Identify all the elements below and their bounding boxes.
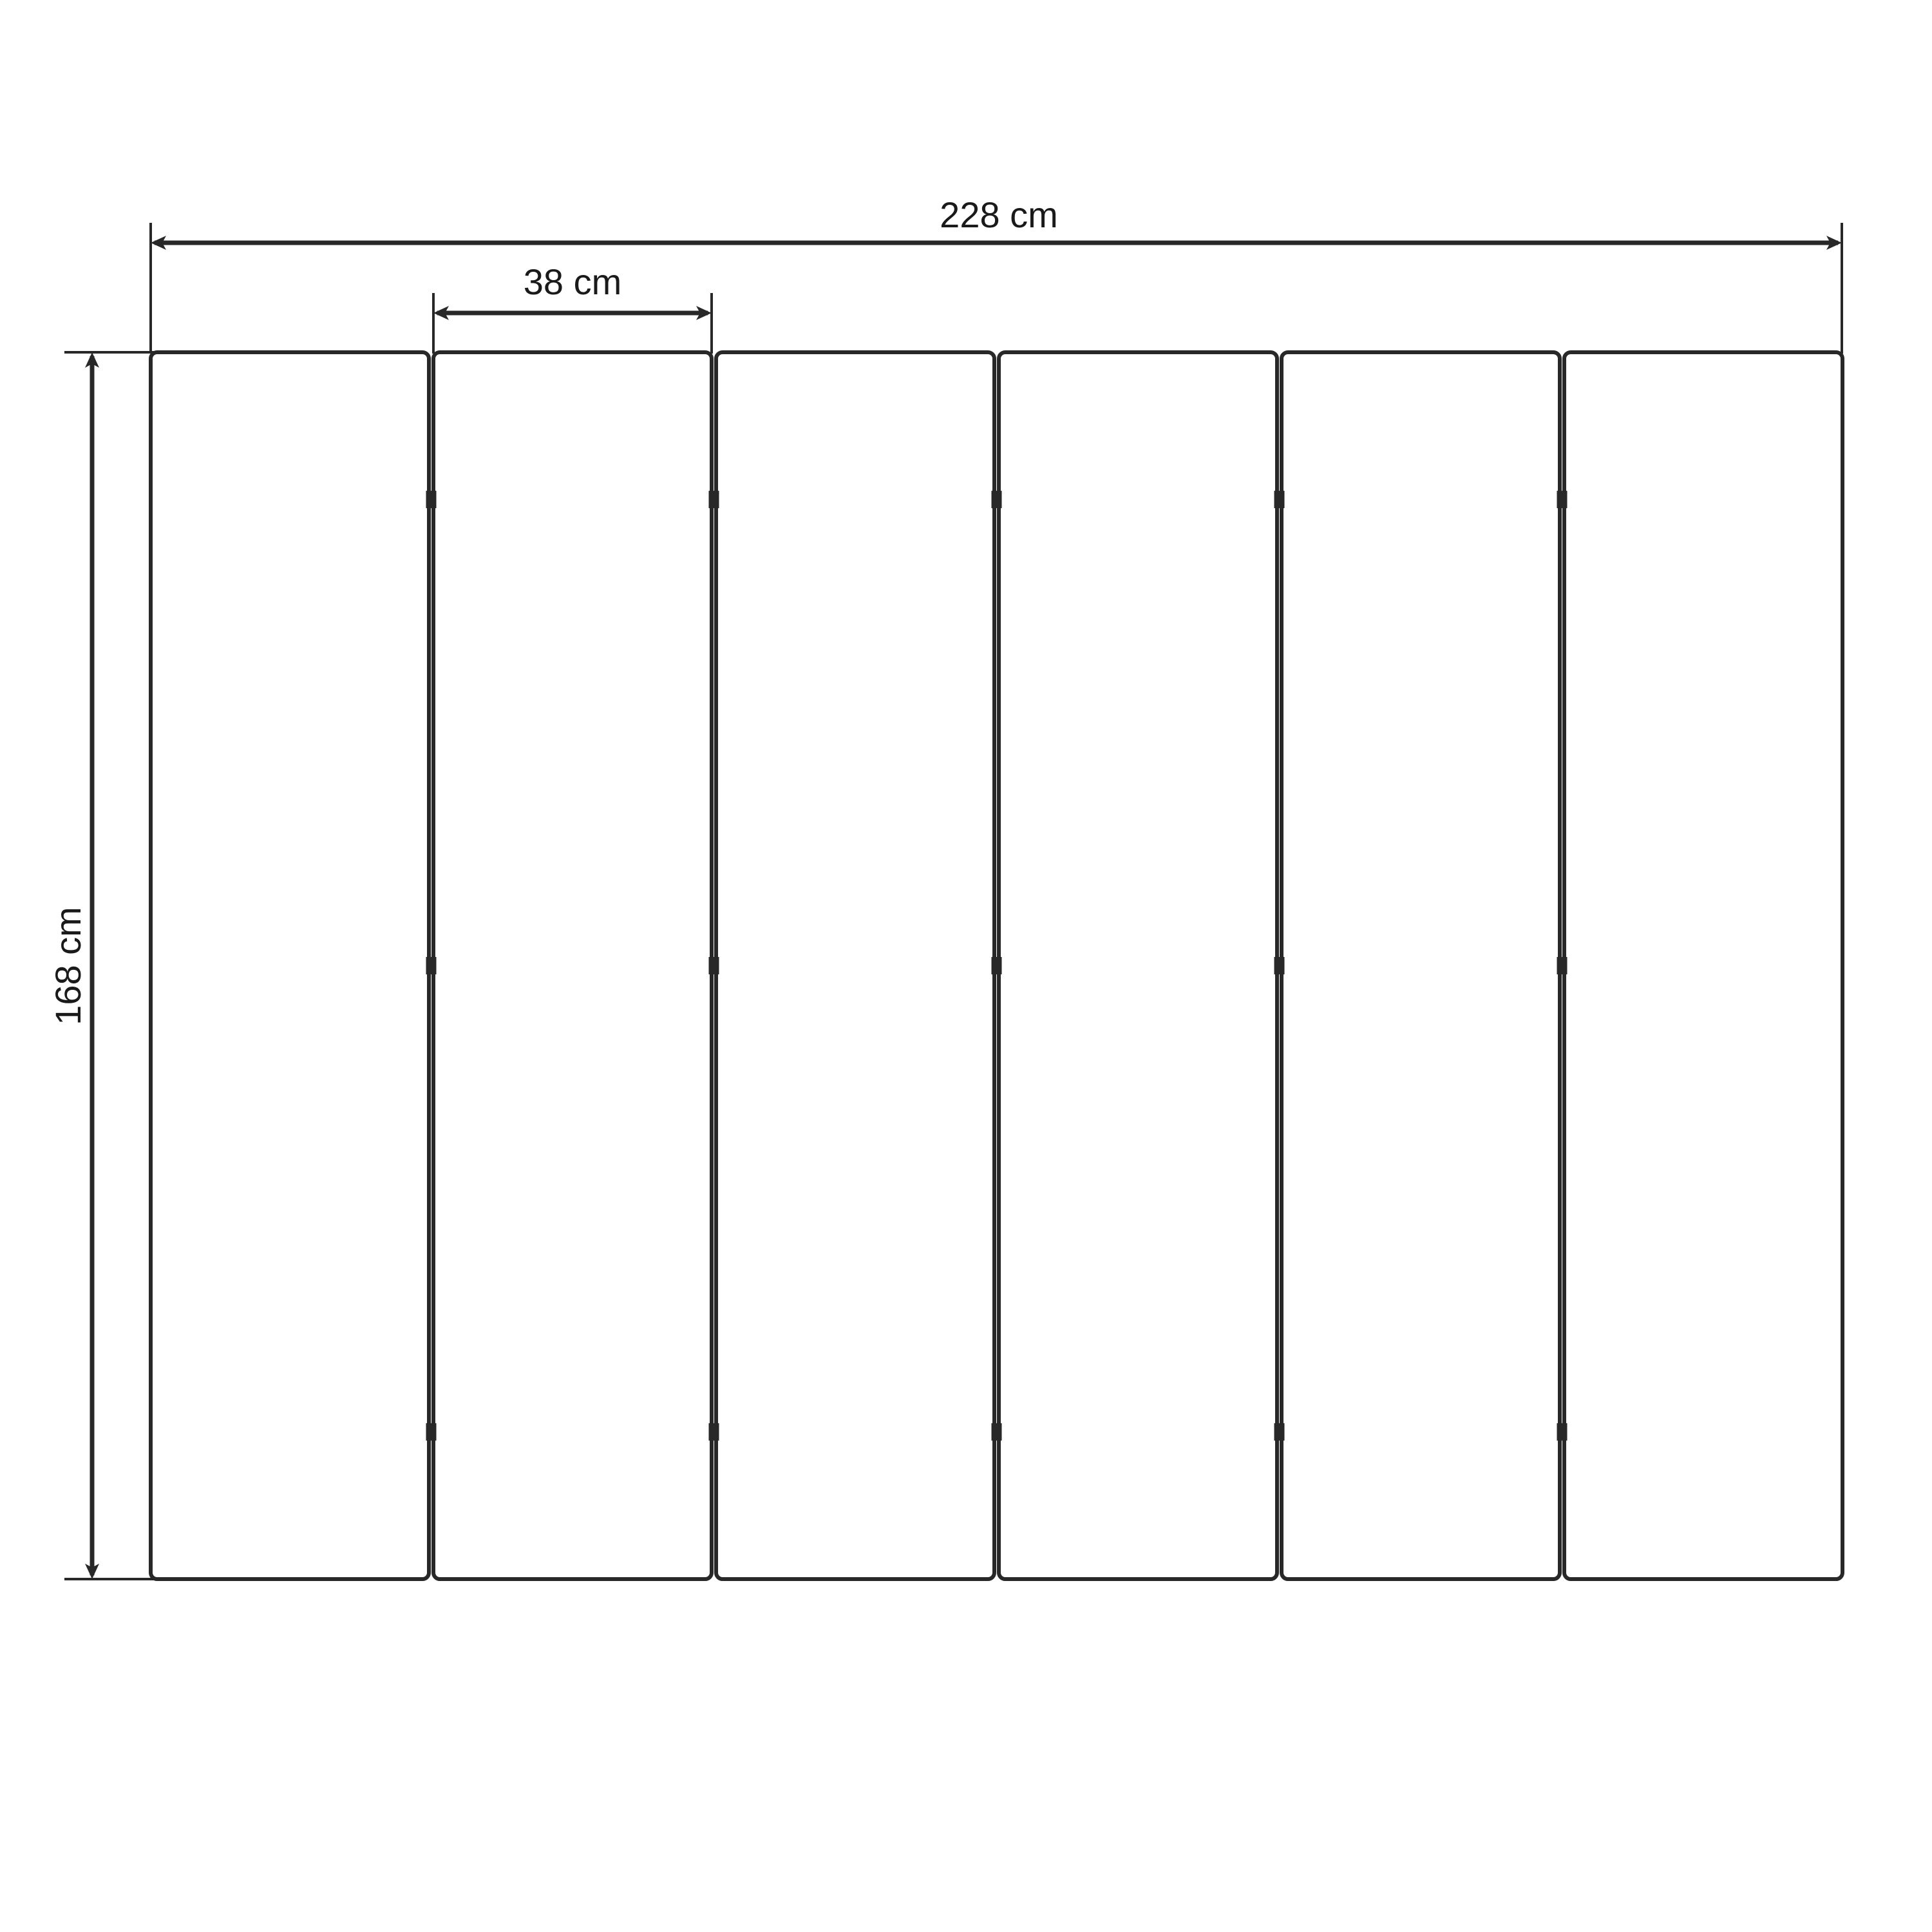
panel-width-label: 38 cm (524, 261, 622, 302)
hinge-mark (1274, 491, 1285, 508)
panel-width-dimension: 38 cm (433, 261, 712, 354)
hinge-mark (1557, 1423, 1567, 1441)
diagram-canvas: 228 cm 38 cm 168 cm (0, 0, 1932, 1932)
hinge-mark (992, 957, 1002, 974)
hinge-mark (709, 1423, 719, 1441)
hinge-mark (426, 491, 437, 508)
panel-outline (151, 352, 429, 1579)
hinge-mark (426, 1423, 437, 1441)
total-width-label: 228 cm (940, 194, 1058, 235)
hinge-mark (709, 957, 719, 974)
panels-group (151, 352, 1842, 1579)
hinge-mark (992, 491, 1002, 508)
dimension-diagram: 228 cm 38 cm 168 cm (0, 0, 1932, 1932)
hinge-mark (992, 1423, 1002, 1441)
hinge-mark (1274, 957, 1285, 974)
hinge-mark (1557, 491, 1567, 508)
panel-outline (999, 352, 1277, 1579)
hinge-mark (709, 491, 719, 508)
panel-outline (716, 352, 994, 1579)
hinge-mark (1557, 957, 1567, 974)
panel-outline (1282, 352, 1560, 1579)
panel-outline (433, 352, 712, 1579)
height-dimension: 168 cm (48, 352, 158, 1579)
hinge-mark (426, 957, 437, 974)
total-width-dimension: 228 cm (151, 194, 1842, 354)
height-label: 168 cm (48, 907, 88, 1025)
hinge-mark (1274, 1423, 1285, 1441)
panel-outline (1564, 352, 1842, 1579)
